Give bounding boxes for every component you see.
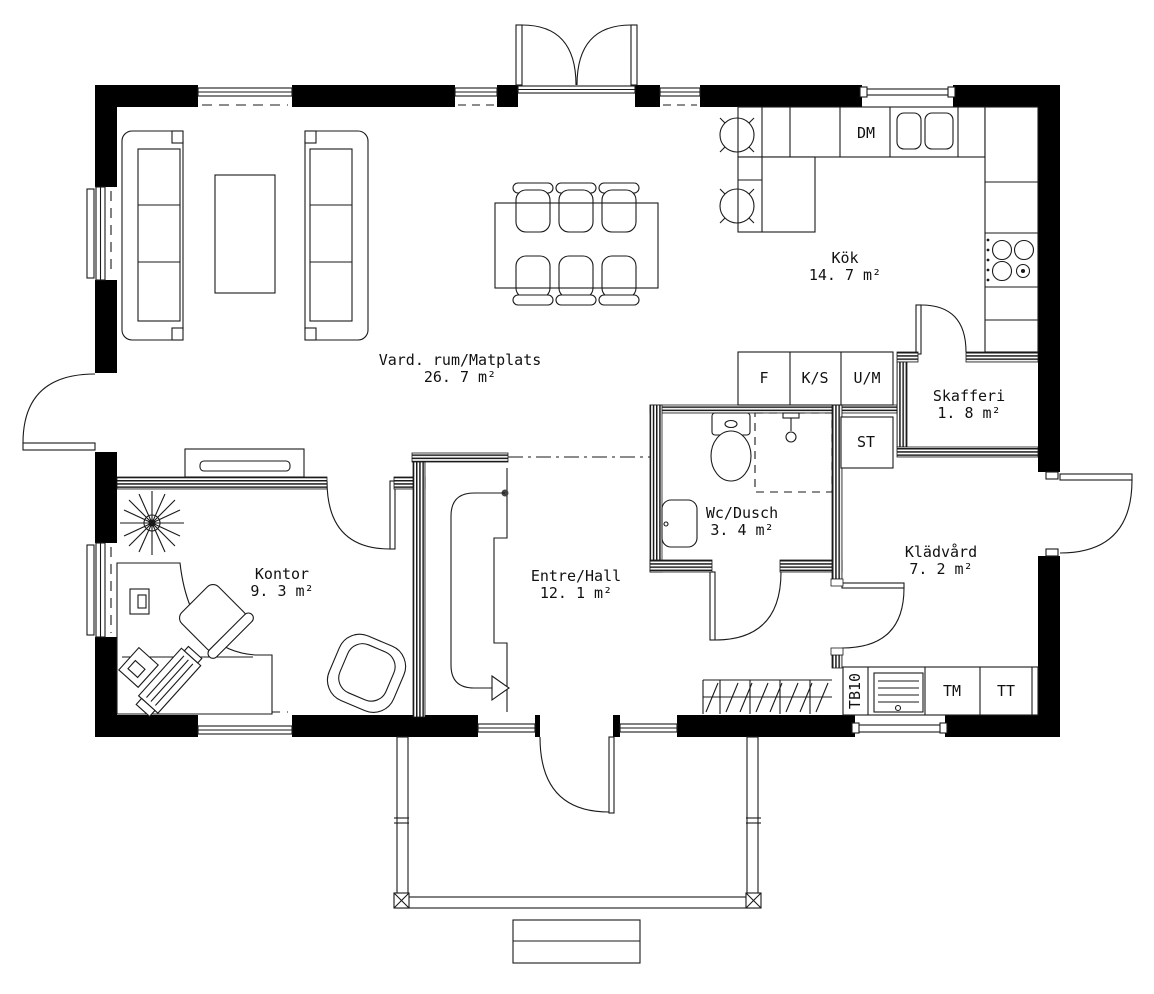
room-name: Kök: [809, 250, 881, 267]
room-label-skafferi: Skafferi 1. 8 m²: [933, 388, 1005, 421]
armchair: [321, 627, 413, 719]
dining-chair: [599, 256, 639, 305]
floor-plan: Vard. rum/Matplats 26. 7 m² Kök 14. 7 m²…: [0, 0, 1154, 994]
shower: [755, 413, 832, 492]
label-oven-micro: U/M: [853, 370, 880, 387]
room-label-entre-hall: Entre/Hall 12. 1 m²: [531, 568, 621, 601]
room-area: 7. 2 m²: [905, 561, 977, 578]
kitchen-counter-right: [985, 107, 1038, 352]
room-label-vardagsrum: Vard. rum/Matplats 26. 7 m²: [379, 352, 542, 385]
room-name: Vard. rum/Matplats: [379, 352, 542, 369]
door-skafferi: [916, 305, 966, 354]
dining-chair: [556, 183, 596, 232]
door-kladvard: [842, 583, 904, 648]
dining-chair: [599, 183, 639, 232]
door-wc: [710, 572, 781, 640]
coat-rack: [703, 680, 832, 714]
porch: [394, 737, 761, 963]
livingroom-furniture: [122, 131, 368, 477]
label-fridge: F: [759, 370, 768, 387]
room-area: 14. 7 m²: [809, 267, 881, 284]
room-area: 3. 4 m²: [706, 522, 778, 539]
sofa: [122, 131, 183, 340]
toilet: [711, 413, 751, 481]
dining-chair: [513, 256, 553, 305]
door-patio-double: [516, 25, 637, 93]
room-name: Klädvård: [905, 544, 977, 561]
sofa: [305, 131, 368, 340]
hall-stair: [451, 468, 509, 712]
label-laundry-bench: TB10: [847, 673, 864, 709]
dining-chair: [513, 183, 553, 232]
room-name: Kontor: [250, 566, 313, 583]
porch-post: [746, 893, 761, 908]
sideboard: [185, 449, 304, 477]
floor-plan-drawing: [0, 0, 1154, 994]
porch-steps: [513, 920, 640, 963]
room-name: Entre/Hall: [531, 568, 621, 585]
dining-chair: [556, 256, 596, 305]
label-tumble-dryer: TT: [997, 683, 1015, 700]
porch-wall-bottom: [397, 897, 758, 908]
room-label-kontor: Kontor 9. 3 m²: [250, 566, 313, 599]
door-exterior-left: [23, 374, 95, 450]
porch-post: [394, 893, 409, 908]
room-label-kladvard: Klädvård 7. 2 m²: [905, 544, 977, 577]
porch-wall-left: [397, 737, 408, 897]
coffee-table: [215, 175, 275, 293]
room-name: Skafferi: [933, 388, 1005, 405]
laundry-bench: [874, 673, 923, 712]
label-washing-machine: TM: [943, 683, 961, 700]
stair-walk-line: [451, 493, 505, 688]
door-entrance: [540, 737, 614, 813]
label-cleaning-cabinet: ST: [857, 434, 875, 451]
room-area: 26. 7 m²: [379, 369, 542, 386]
door-kontor: [327, 481, 395, 549]
kitchen-fixtures: [720, 107, 1038, 352]
room-area: 9. 3 m²: [250, 583, 313, 600]
label-dishwasher: DM: [857, 125, 875, 142]
room-name: Wc/Dusch: [706, 505, 778, 522]
corner-desk: [117, 563, 272, 714]
porch-wall-right: [747, 737, 758, 897]
computer-monitor: [130, 589, 149, 614]
wc-sink: [662, 500, 697, 547]
plant: [120, 491, 184, 555]
kontor-furniture: [109, 491, 412, 719]
room-area: 1. 8 m²: [933, 405, 1005, 422]
room-label-wc-dusch: Wc/Dusch 3. 4 m²: [706, 505, 778, 538]
dining-set: [495, 183, 658, 305]
room-label-kok: Kök 14. 7 m²: [809, 250, 881, 283]
room-area: 12. 1 m²: [531, 585, 621, 602]
label-fridge-freezer: K/S: [801, 370, 828, 387]
